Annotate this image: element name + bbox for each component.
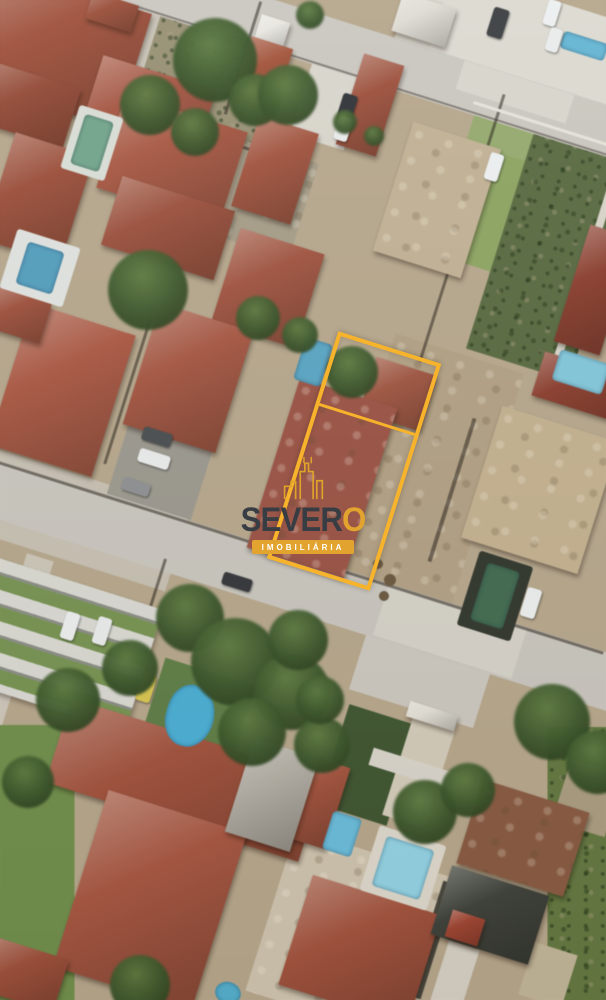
ground-walk-bc (430, 941, 479, 1000)
brand-name-accent: O (342, 501, 365, 539)
property-outline-divider (319, 403, 415, 436)
watermark: SEVERO IMOBILIÁRIA (163, 455, 443, 555)
brand-name-dark: SEVER (241, 501, 342, 539)
pool-round (212, 979, 243, 1000)
buildings-icon (274, 455, 332, 501)
brand-name: SEVERO (174, 503, 432, 537)
aerial-photo: SEVERO IMOBILIÁRIA (0, 0, 606, 1000)
brand-tagline: IMOBILIÁRIA (252, 540, 355, 554)
